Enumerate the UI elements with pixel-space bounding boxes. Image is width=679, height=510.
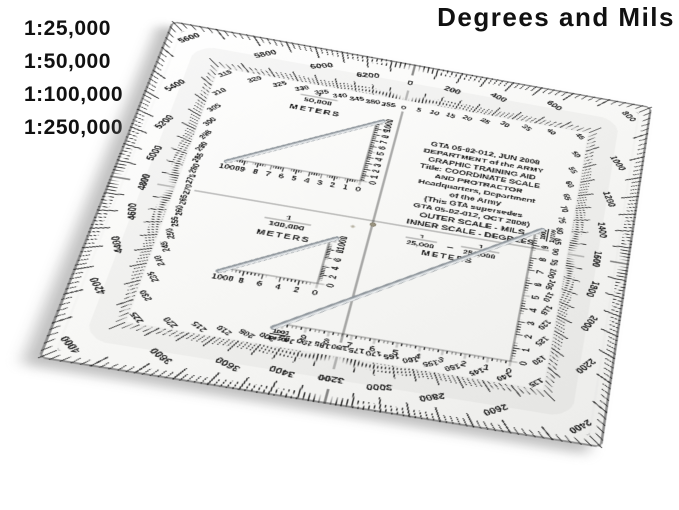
scale-ratio-list: 1:25,000 1:50,000 1:100,000 1:250,000: [24, 12, 123, 144]
svg-text:265: 265: [176, 194, 190, 205]
protractor: 0200400600800100012001400160018002000220…: [38, 21, 652, 448]
svg-text:75: 75: [556, 217, 568, 224]
svg-text:340: 340: [332, 92, 348, 99]
ratio-item: 1:50,000: [24, 45, 123, 78]
svg-text:1600: 1600: [590, 250, 605, 268]
svg-text:345: 345: [349, 95, 364, 102]
svg-text:250: 250: [163, 228, 177, 239]
page-title: Degrees and Mils: [437, 2, 675, 33]
svg-text:70: 70: [558, 205, 571, 212]
ratio-item: 1:100,000: [24, 78, 123, 111]
svg-text:1400: 1400: [596, 222, 610, 238]
svg-text:255: 255: [169, 216, 181, 226]
svg-text:4600: 4600: [125, 203, 139, 220]
svg-text:3000: 3000: [366, 382, 393, 392]
ratio-item: 1:250,000: [24, 111, 123, 144]
svg-text:6000: 6000: [309, 61, 334, 70]
product-photo: 1:25,000 1:50,000 1:100,000 1:250,000 De…: [0, 0, 679, 510]
svg-text:350: 350: [366, 98, 381, 106]
svg-text:260: 260: [173, 205, 186, 216]
ratio-item: 1:25,000: [24, 12, 123, 45]
svg-text:6200: 6200: [356, 71, 379, 80]
